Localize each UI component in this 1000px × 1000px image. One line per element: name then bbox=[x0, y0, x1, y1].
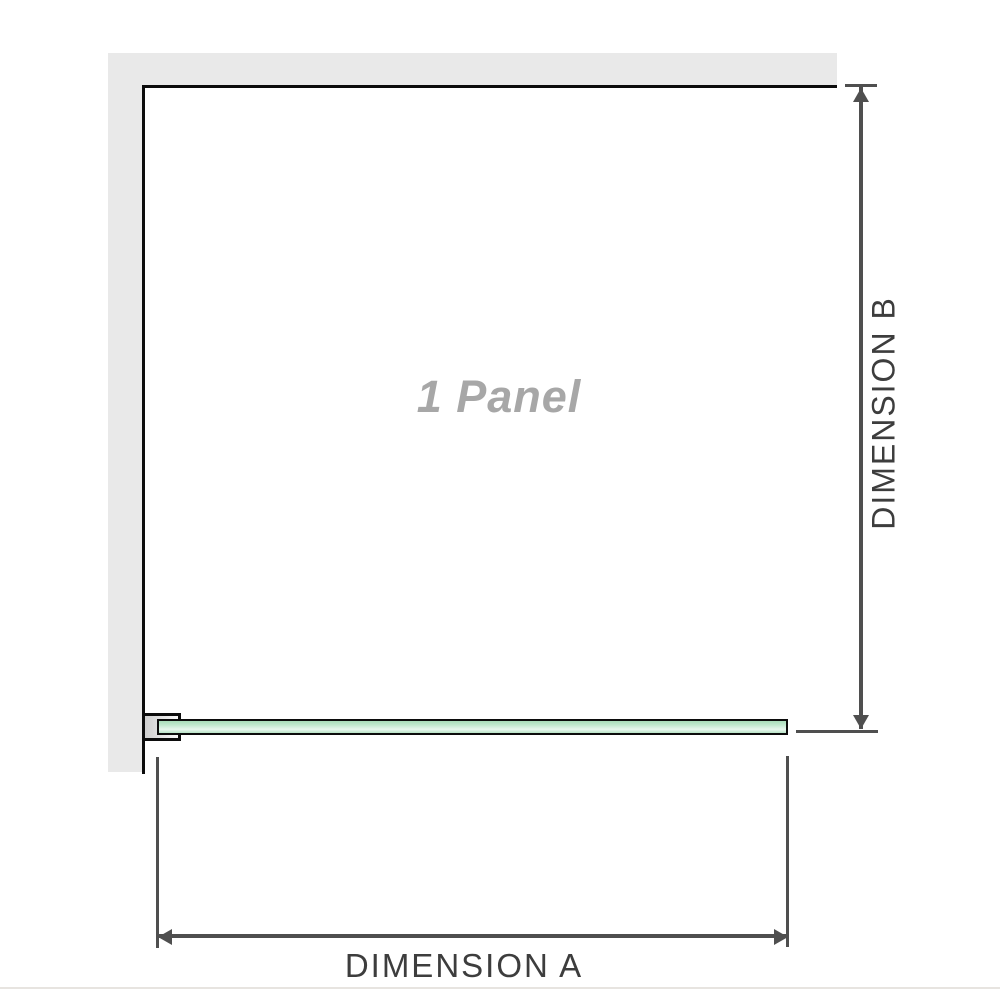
glass-panel bbox=[157, 719, 788, 735]
dimension-b-line bbox=[859, 87, 863, 729]
arrow-left-icon bbox=[158, 929, 172, 945]
dimension-a-label: DIMENSION A bbox=[345, 947, 583, 985]
dimension-b-label: DIMENSION B bbox=[866, 296, 903, 530]
wall-top-bar bbox=[108, 53, 837, 87]
enclosure-outline-left bbox=[142, 85, 145, 774]
wall-left-bar bbox=[108, 53, 143, 772]
dimension-b-tick-bottom bbox=[796, 730, 878, 733]
arrow-up-icon bbox=[853, 88, 869, 102]
enclosure-outline-top bbox=[142, 85, 837, 88]
arrow-down-icon bbox=[853, 715, 869, 729]
panel-count-label: 1 Panel bbox=[417, 371, 582, 423]
page-baseline-divider bbox=[0, 987, 1000, 989]
dimension-a-extension-left bbox=[156, 757, 159, 948]
arrow-right-icon bbox=[774, 929, 788, 945]
shower-panel-diagram: 1 Panel DIMENSION B DIMENSION A bbox=[0, 0, 1000, 1000]
dimension-a-extension-right bbox=[786, 756, 789, 947]
dimension-a-line bbox=[158, 934, 788, 938]
